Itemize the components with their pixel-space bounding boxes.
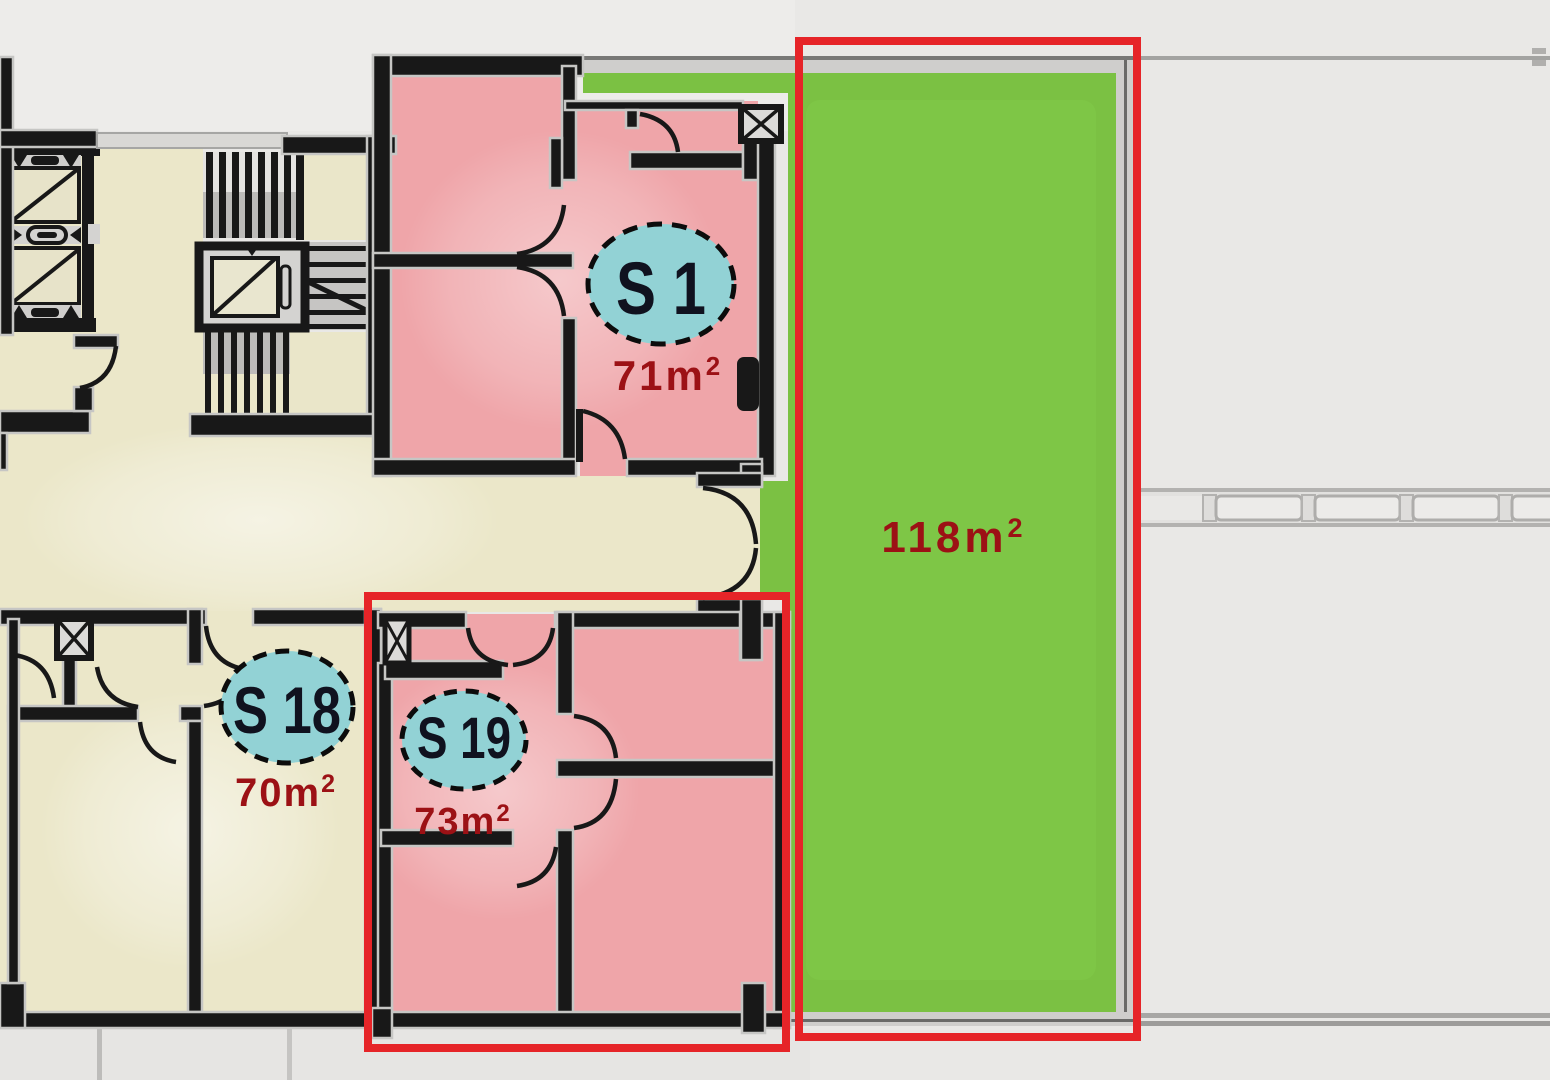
svg-text:S 18: S 18: [233, 673, 341, 747]
svg-text:118m2: 118m2: [881, 513, 1026, 562]
svg-text:S 19: S 19: [417, 706, 511, 771]
svg-text:S 1: S 1: [616, 247, 706, 330]
